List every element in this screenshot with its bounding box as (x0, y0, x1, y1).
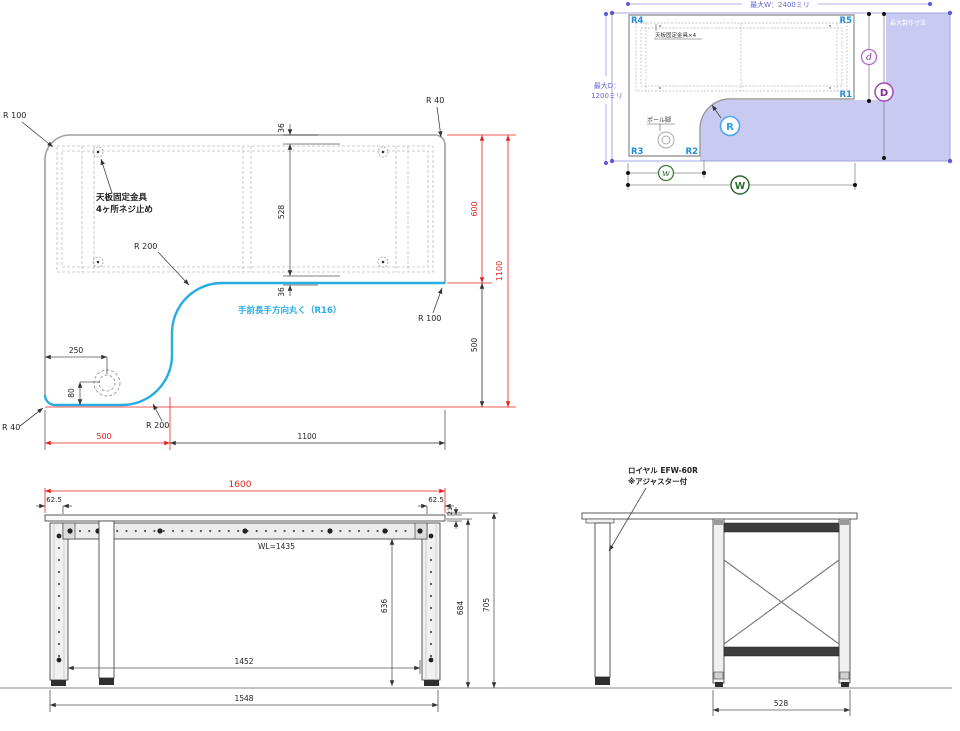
side-pole-plate (586, 519, 614, 523)
front-rail (63, 523, 427, 539)
side-tabletop (582, 513, 857, 519)
pole-leg-label: ポール脚 (647, 116, 671, 124)
max-w-label: 最大W：2400ミリ (750, 0, 810, 9)
front-left-leg (50, 523, 68, 686)
max-d-label-line1: 最大D： (594, 81, 620, 90)
front-tabletop (45, 515, 445, 521)
schematic-fixture-note: 天板固定金具×4 (655, 31, 697, 39)
label-r100-top-left: R 100 (3, 111, 26, 120)
bottom-extension-lines (45, 410, 445, 450)
dim-1600: 1600 (229, 480, 252, 490)
dim-62-5-left: 62.5 (46, 496, 62, 504)
front-round-note: 手前長手方向丸く（R16） (238, 305, 341, 316)
label-r3: R3 (631, 147, 644, 157)
side-x-brace (724, 560, 839, 644)
label-r5: R5 (840, 16, 853, 26)
plan-view: 36 528 36 600 1100 500 500 1100 250 80 (2, 96, 516, 450)
label-r200-bottom: R 200 (146, 421, 169, 430)
label-r4: R4 (631, 16, 644, 26)
wl-label: WL=1435 (258, 542, 295, 551)
d-small-badge-letter: d (866, 53, 872, 63)
label-r40-top-right: R 40 (426, 96, 444, 105)
part-label-line2: ※アジャスター付 (628, 476, 688, 486)
drawing-canvas: 36 528 36 600 1100 500 500 1100 250 80 (0, 0, 960, 731)
dim-1452: 1452 (234, 657, 253, 666)
side-top-rail (724, 523, 839, 532)
front-right-leg (422, 523, 440, 686)
d-big-badge-letter: D (880, 88, 888, 99)
front-pole-leg (99, 521, 114, 685)
label-r2: R2 (686, 147, 699, 157)
dim-80: 80 (67, 388, 76, 398)
label-r100-right: R 100 (418, 314, 441, 323)
schematic-view: 天板固定金具×4 ポール脚 R4 R5 R1 R2 R3 R d D (591, 0, 952, 194)
dim-1548: 1548 (234, 694, 253, 703)
fixture-note-line2: 4ヶ所ネジ止め (96, 204, 153, 215)
dim-500-right: 500 (470, 338, 479, 353)
max-d-label-line2: 1200ミリ (591, 92, 623, 100)
side-frame (713, 519, 850, 687)
desk-top-outline (45, 135, 445, 405)
dim-250: 250 (69, 346, 84, 355)
label-r1: R1 (840, 90, 853, 100)
technical-drawing-sheet: 36 528 36 600 1100 500 500 1100 250 80 (0, 0, 960, 731)
part-label-line1: ロイヤル EFW-60R (628, 466, 698, 475)
front-elevation: WL=1435 1600 62.5 62.5 21 636 684 705 14… (36, 480, 498, 712)
max-make-note: 最大製作寸法 (890, 19, 926, 27)
front-1600-ext (45, 488, 445, 513)
fixture-note-line1: 天板固定金具 (96, 192, 148, 203)
dim-1100-bottom: 1100 (297, 432, 316, 441)
side-elevation: ロイヤル EFW-60R ※アジャスター付 528 (582, 466, 857, 716)
w-big-badge-letter: W (735, 181, 746, 192)
dim-528: 528 (277, 205, 286, 220)
dim-600: 600 (470, 201, 479, 216)
part-label-leader (609, 488, 646, 551)
dim-500-bottom: 500 (96, 432, 111, 441)
side-pole-leg (595, 523, 610, 685)
dim-21: 21 (446, 507, 454, 515)
dim-36-bottom: 36 (277, 287, 286, 297)
r-badge-letter: R (726, 122, 734, 133)
dim-1100-right: 1100 (495, 261, 504, 281)
dim-636: 636 (380, 599, 389, 614)
dim-36-top: 36 (277, 123, 286, 133)
label-r200-mid: R 200 (134, 242, 157, 251)
dim-528-side: 528 (774, 699, 789, 708)
w-small-badge-letter: w (662, 169, 670, 179)
dim-684: 684 (456, 601, 465, 616)
dim-62-5-right: 62.5 (428, 496, 444, 504)
dim-705: 705 (482, 598, 491, 613)
label-r40-bottom-left: R 40 (2, 423, 20, 432)
side-bottom-rail (724, 647, 839, 656)
